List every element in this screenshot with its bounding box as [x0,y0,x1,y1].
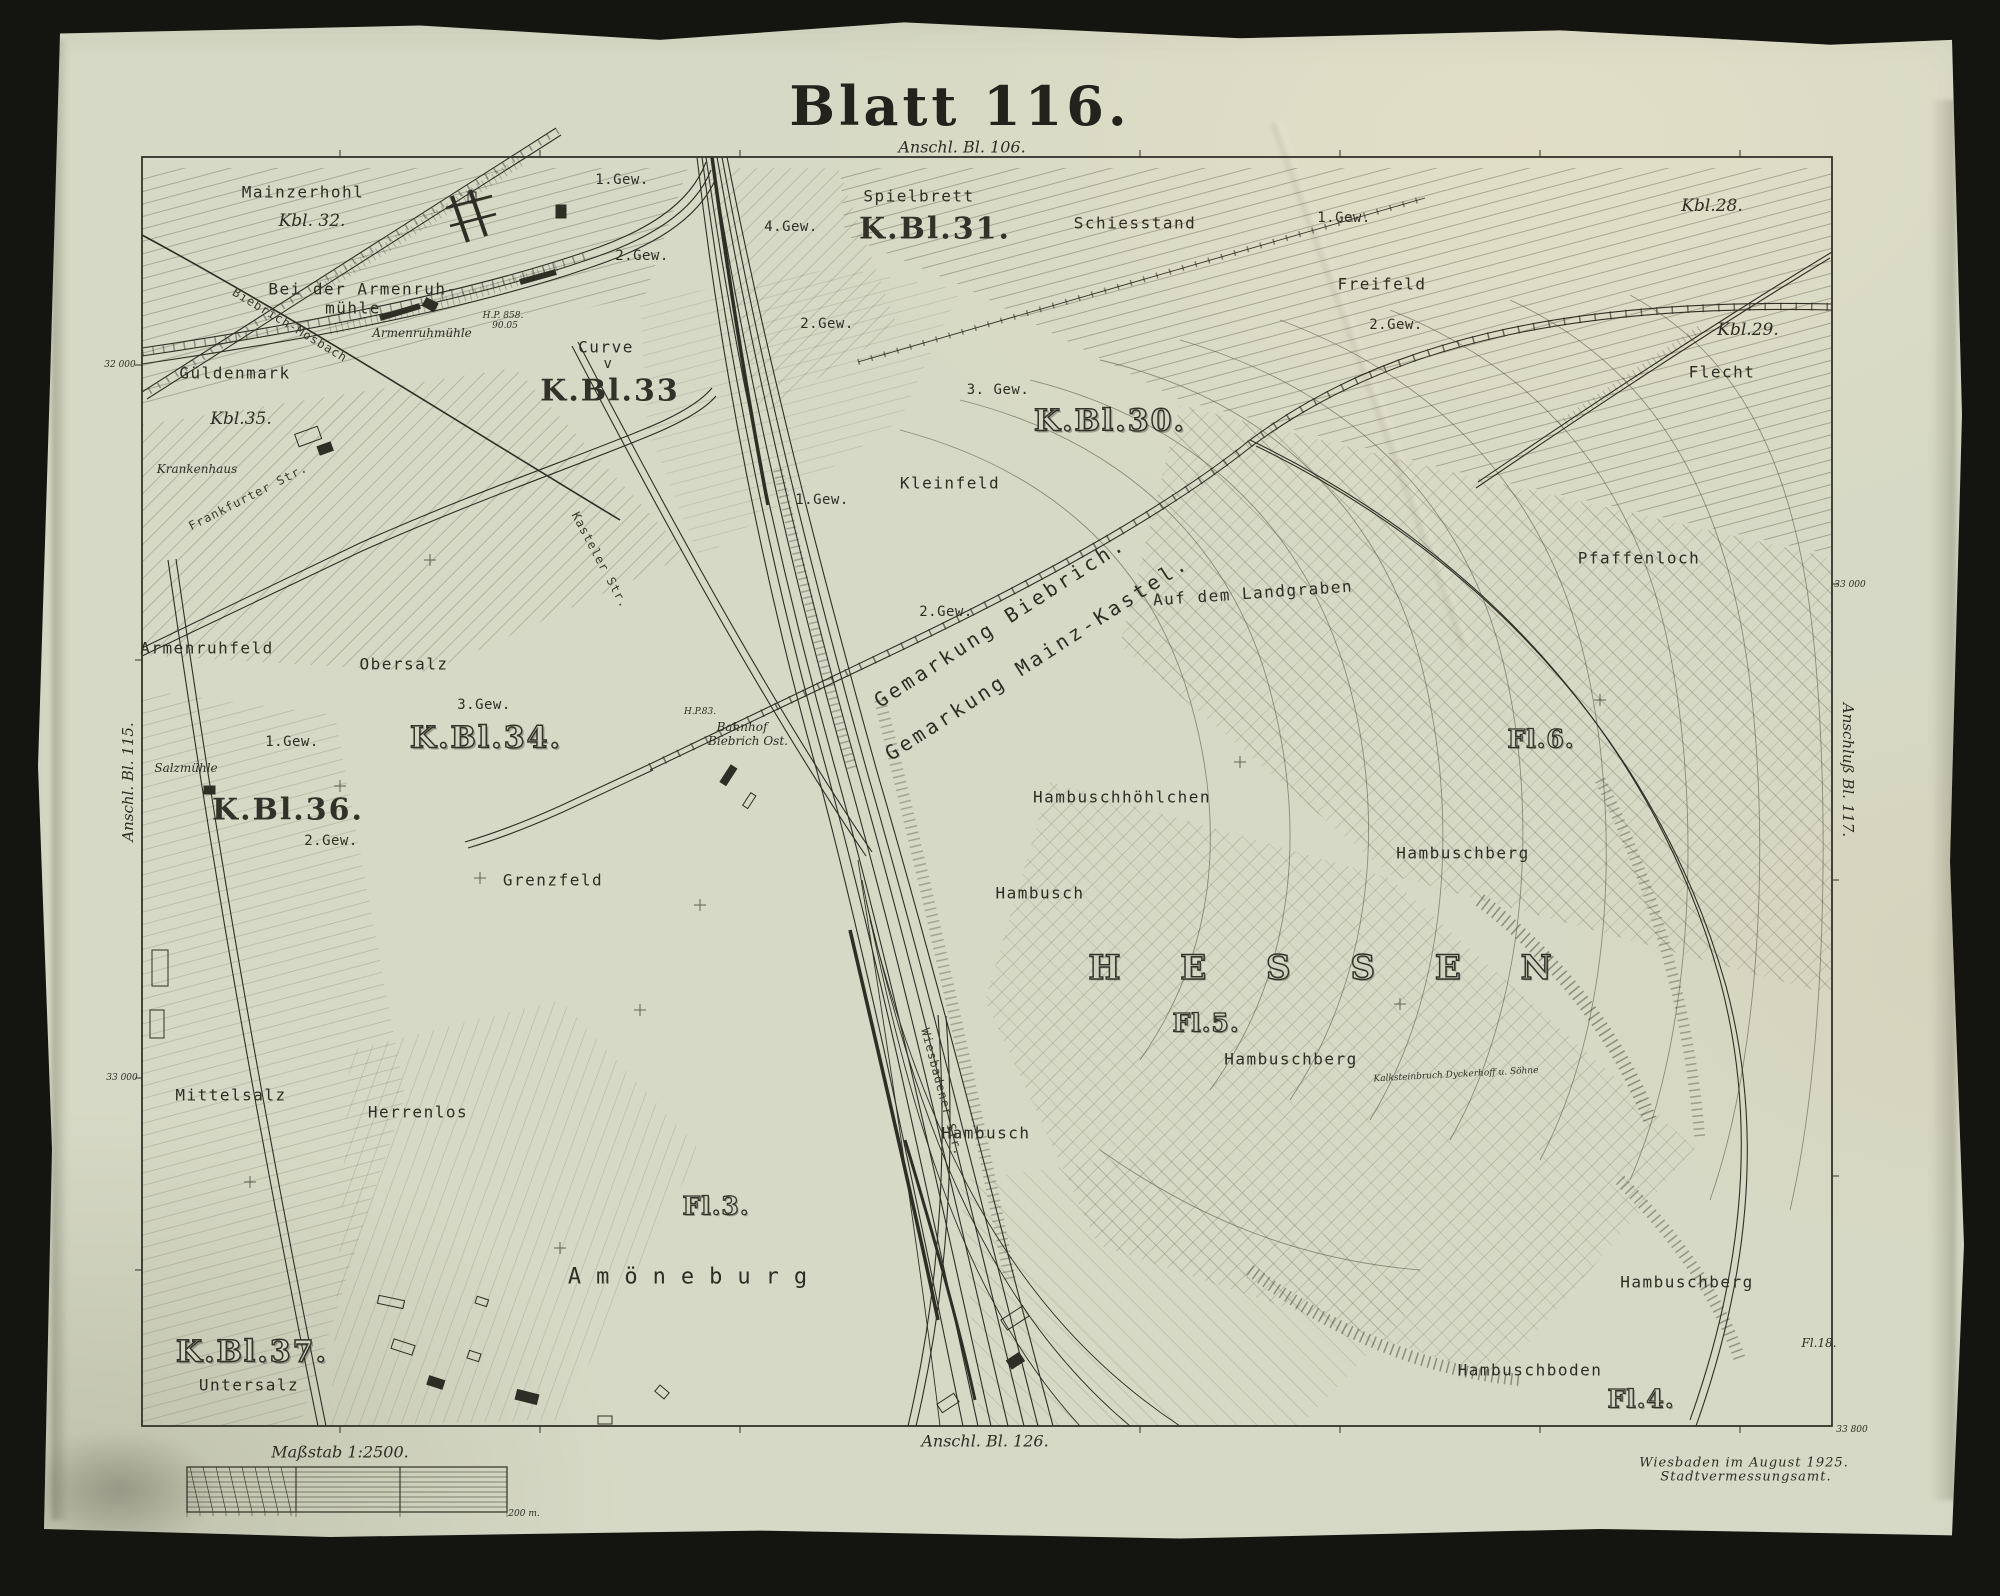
scanned-map-page: { "sheet": { "title": "Blatt 116.", "sca… [0,0,2000,1596]
map-linework [0,0,2000,1596]
